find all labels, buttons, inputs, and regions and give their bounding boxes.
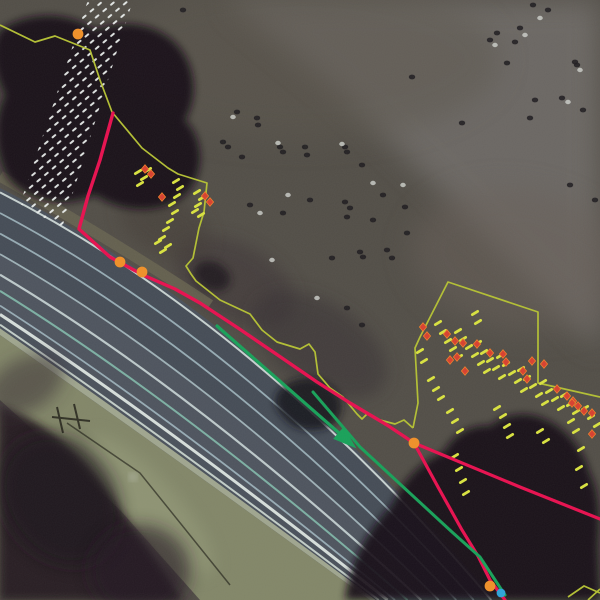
aerial-map-view [0, 0, 600, 600]
photo-grain-overlay [0, 0, 600, 600]
map-canvas[interactable] [0, 0, 600, 600]
